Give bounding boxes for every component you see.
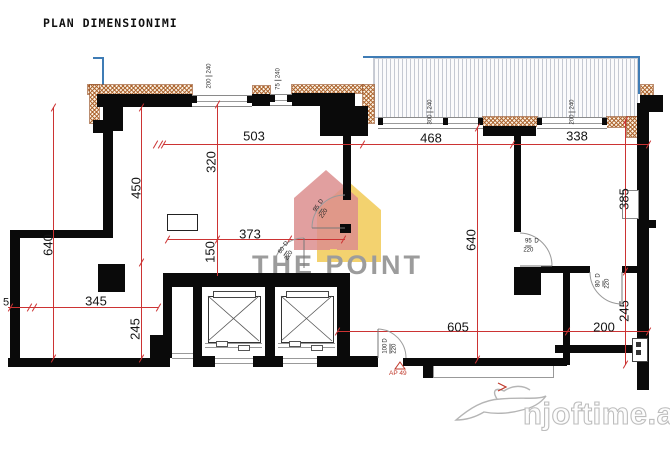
terrace-edge [553, 366, 554, 378]
door-height: 220 [604, 279, 611, 289]
wall-segment [8, 358, 170, 367]
door-size-label: 95220 D [523, 239, 538, 254]
door-tag: D [534, 239, 538, 245]
wall-segment [10, 230, 107, 238]
wall-segment [150, 335, 168, 366]
dimension-label: 245 [618, 300, 631, 322]
balcony-edge [638, 56, 640, 94]
window-width: 200 [569, 115, 575, 125]
wall-segment [343, 107, 351, 200]
dimension-label: 5 [3, 298, 9, 309]
wall-segment [93, 120, 103, 133]
wall-segment [483, 126, 536, 136]
dimension-label: 320 [205, 151, 218, 173]
door-size-label: 80220 D [596, 273, 611, 288]
window-jamb [287, 95, 292, 102]
door-height: 220 [391, 344, 398, 354]
dimension-label: 245 [129, 318, 142, 340]
door-height: 220 [523, 247, 533, 254]
elevator-door-panel [311, 345, 323, 351]
door-width: 95 [525, 239, 532, 247]
window-size-label: 200240 [206, 63, 213, 88]
wall-hatch [483, 117, 537, 126]
window-jamb [537, 118, 542, 125]
elevator-counterweight [286, 291, 329, 298]
dimension-tick [156, 303, 161, 311]
dimension-label: 200 [593, 321, 615, 334]
elevator-door-panel [216, 341, 228, 347]
wall-hatch [88, 85, 192, 94]
wall-hatch [253, 86, 270, 94]
elevator-door-panel [289, 341, 301, 347]
dimension-tick [341, 235, 346, 243]
window-height: 240 [569, 99, 575, 109]
door-sill [283, 363, 317, 364]
terrace-edge [433, 377, 553, 378]
door-sill [172, 353, 193, 354]
dimension-label: 605 [447, 321, 469, 334]
wall-segment [103, 107, 113, 238]
elevator-car [208, 296, 261, 343]
elevator-counterweight [213, 291, 256, 298]
floor-plan-canvas: THE POINT njoftime.al PLAN DIMENSIONIMI [0, 0, 670, 450]
red-arrow-icon [498, 383, 506, 391]
wall-segment [337, 287, 350, 356]
wall-segment [193, 356, 215, 367]
dimension-label: 503 [243, 130, 265, 143]
elevator-door-rail [205, 343, 262, 344]
elevator-door-rail [278, 347, 335, 348]
door-size-label: 95220 D [311, 198, 332, 219]
wall-segment [317, 356, 378, 367]
page-title: PLAN DIMENSIONIMI [43, 16, 178, 30]
blue-corner-mark [102, 57, 104, 85]
door-sill [172, 358, 193, 359]
window [192, 95, 252, 107]
wall-segment [253, 356, 283, 367]
door-size-label: 100220 D [383, 338, 398, 353]
ap-reference-label: AP 49 [389, 370, 407, 377]
wall-segment [292, 93, 355, 106]
door-sill [215, 358, 253, 359]
dimension-line [8, 307, 158, 308]
structural-column [98, 264, 125, 292]
window-jamb [247, 96, 252, 103]
window-jamb [602, 118, 607, 125]
dimension-line [53, 107, 54, 358]
dimension-label: 150 [204, 241, 217, 263]
window-width: 75 [275, 83, 281, 90]
door-tag: D [596, 273, 602, 277]
site-watermark: njoftime.al [523, 396, 670, 432]
elevator-door-rail [205, 347, 262, 348]
dimension-line [625, 120, 626, 365]
wall-segment [514, 130, 521, 232]
wall-segment [265, 287, 275, 356]
wall-segment [252, 94, 270, 106]
window-width: 200 [206, 79, 212, 89]
window-jamb [378, 118, 383, 125]
dimension-label: 640 [42, 234, 55, 256]
dimension-label: 468 [420, 132, 442, 145]
dimension-label: 373 [239, 228, 261, 241]
elevator-car [281, 296, 334, 343]
window-height: 240 [206, 63, 212, 73]
door-tag: D [383, 338, 389, 342]
window-width: 300 [427, 115, 433, 125]
elevator-door-rail [278, 343, 335, 344]
duct-cell [636, 350, 641, 355]
wall-hatch [292, 85, 363, 93]
dimension-label: 640 [465, 229, 478, 251]
window-size-label: 300240 [427, 99, 434, 124]
dimension-label: 345 [85, 295, 107, 308]
wall-segment [193, 287, 202, 356]
window-height: 240 [275, 68, 281, 78]
door-sill [215, 363, 253, 364]
duct-cell [636, 342, 641, 347]
door-sill [283, 358, 317, 359]
balcony-decking [374, 59, 637, 117]
wall-segment [423, 363, 433, 378]
window-size-label: 200240 [569, 99, 576, 124]
door-width: 100 [383, 344, 391, 354]
window-size-label: 75240 [275, 68, 282, 90]
dimension-label: 338 [566, 130, 588, 143]
dimension-tick [623, 360, 628, 368]
wall-segment [340, 224, 351, 233]
door-width: 80 [596, 280, 604, 287]
elevator-door-panel [238, 345, 250, 351]
wall-hatch [641, 85, 653, 95]
window-jamb [192, 96, 197, 103]
window-height: 240 [427, 99, 433, 109]
furniture-rect [167, 214, 198, 231]
wall-segment [649, 220, 656, 228]
wall-segment [97, 94, 192, 107]
dimension-line [163, 144, 648, 145]
wall-segment [163, 273, 350, 287]
window-jamb [443, 118, 448, 125]
window-jamb [270, 95, 275, 102]
wall-column [514, 267, 541, 295]
dimension-label: 450 [130, 177, 143, 199]
dimension-label: 385 [618, 188, 631, 210]
wall-segment [10, 230, 20, 367]
